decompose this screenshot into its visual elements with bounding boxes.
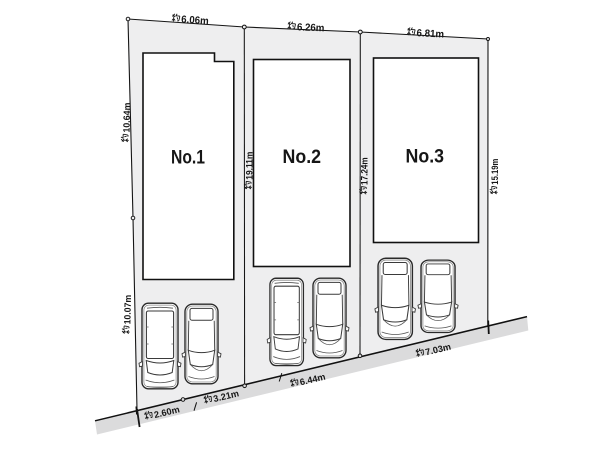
svg-text:6.06m: 6.06m — [181, 15, 209, 28]
svg-text:No.3: No.3 — [406, 146, 445, 168]
svg-text:No.2: No.2 — [283, 146, 322, 168]
svg-text:6.81m: 6.81m — [416, 28, 444, 40]
svg-text:17.24m: 17.24m — [360, 157, 370, 185]
svg-text:10.07m: 10.07m — [122, 295, 133, 325]
svg-text:6.26m: 6.26m — [297, 22, 325, 34]
svg-text:No.1: No.1 — [171, 147, 205, 169]
svg-text:10.64m: 10.64m — [121, 102, 132, 132]
svg-text:15.19m: 15.19m — [490, 159, 500, 185]
svg-text:19.11m: 19.11m — [244, 152, 254, 180]
